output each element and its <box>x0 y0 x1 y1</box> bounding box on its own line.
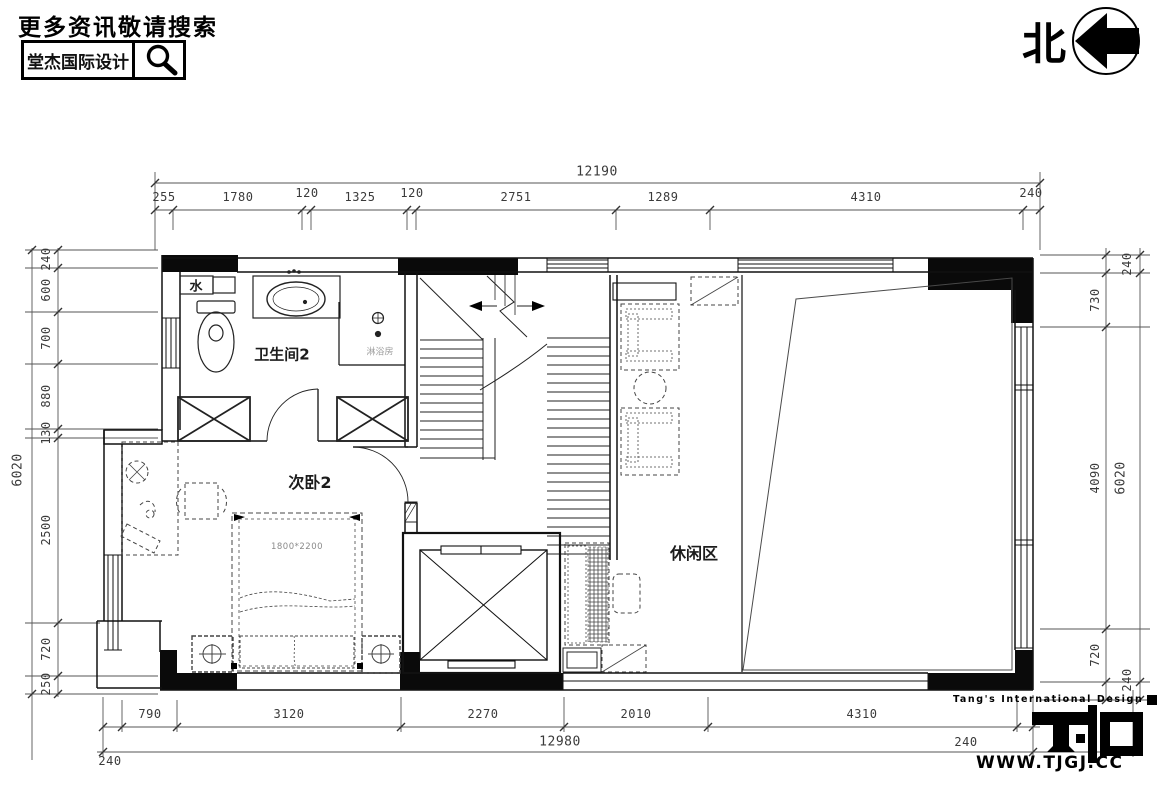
room-label-bathroom: 卫生间2 <box>254 344 309 365</box>
logo-company-line: Tang's International Design <box>953 694 1157 705</box>
dim-bottom-seg: 4310 <box>847 707 878 721</box>
room-label-leisure: 休闲区 <box>670 540 718 564</box>
dim-left-seg: 130 <box>39 421 53 444</box>
dim-left-seg: 880 <box>39 384 53 407</box>
north-label: 北 <box>1022 8 1066 72</box>
dim-bottom-seg: 2010 <box>621 707 652 721</box>
floorplan-sheet: 更多资讯敬请搜索 堂杰国际设计 北 12190 255 1780 120 132… <box>0 0 1158 800</box>
floorplan-drawing <box>0 0 1158 800</box>
dim-top-seg: 2751 <box>501 190 532 204</box>
bed-corner-marks <box>231 514 363 669</box>
dim-right-seg: 730 <box>1088 288 1102 311</box>
dim-right-seg: 720 <box>1088 643 1102 666</box>
north-arrow-icon <box>1073 8 1139 74</box>
dim-left-seg: 700 <box>39 326 53 349</box>
dim-right-wall-top: 240 <box>1120 252 1134 275</box>
room-label-bedroom: 次卧2 <box>288 469 331 493</box>
leisure-step <box>563 648 601 672</box>
bedroom-door <box>353 447 417 522</box>
logo-company-text: Tang's International Design <box>953 694 1143 705</box>
dim-top-seg: 1325 <box>345 190 376 204</box>
dim-left-seg: 2500 <box>39 515 53 546</box>
room-label-shower: 淋浴房 <box>366 345 393 358</box>
dim-left-total: 6020 <box>11 453 26 486</box>
dim-bottom-seg: 2270 <box>468 707 499 721</box>
dim-right-seg: 4090 <box>1088 463 1102 494</box>
logo-square <box>1147 695 1157 705</box>
elevator <box>403 533 560 673</box>
search-box: 堂杰国际设计 <box>21 40 186 80</box>
bookshelf-hatch <box>588 547 608 642</box>
dim-right-wall-bottom: 240 <box>1120 668 1134 691</box>
dim-bottom-seg: 790 <box>138 707 161 721</box>
sloped-ceiling-outline <box>743 278 1012 670</box>
dim-top-seg: 240 <box>1019 186 1042 200</box>
header-tagline: 更多资讯敬请搜索 <box>18 8 218 42</box>
brand-label: 堂杰国际设计 <box>24 43 135 77</box>
dim-left-seg: 250 <box>39 672 53 695</box>
dim-top-seg: 1289 <box>648 190 679 204</box>
dim-top-seg: 120 <box>295 186 318 200</box>
dim-bottom-left-wall: 240 <box>98 754 121 768</box>
dim-bottom-right-wall: 240 <box>954 735 977 749</box>
dim-top-seg: 4310 <box>851 190 882 204</box>
dim-left-seg: 600 <box>39 278 53 301</box>
dim-left-seg: 240 <box>39 247 53 270</box>
dim-top-total: 12190 <box>576 165 618 180</box>
dim-top-seg: 120 <box>400 186 423 200</box>
dim-bottom-total: 12980 <box>539 735 581 750</box>
windows <box>104 258 1033 690</box>
staircase <box>420 275 610 554</box>
water-meter-label: 水 <box>189 276 202 295</box>
search-icon-cell <box>135 43 183 77</box>
dim-top-seg: 255 <box>152 190 175 204</box>
dim-bottom-seg: 3120 <box>274 707 305 721</box>
dim-right-total: 6020 <box>1114 461 1129 494</box>
dim-left-seg: 720 <box>39 637 53 660</box>
logo-website: WWW.TJGJ.CC <box>976 753 1123 773</box>
dim-top-seg: 1780 <box>223 190 254 204</box>
bedroom-furniture <box>121 442 400 673</box>
bed-size-label: 1800*2200 <box>271 542 323 552</box>
